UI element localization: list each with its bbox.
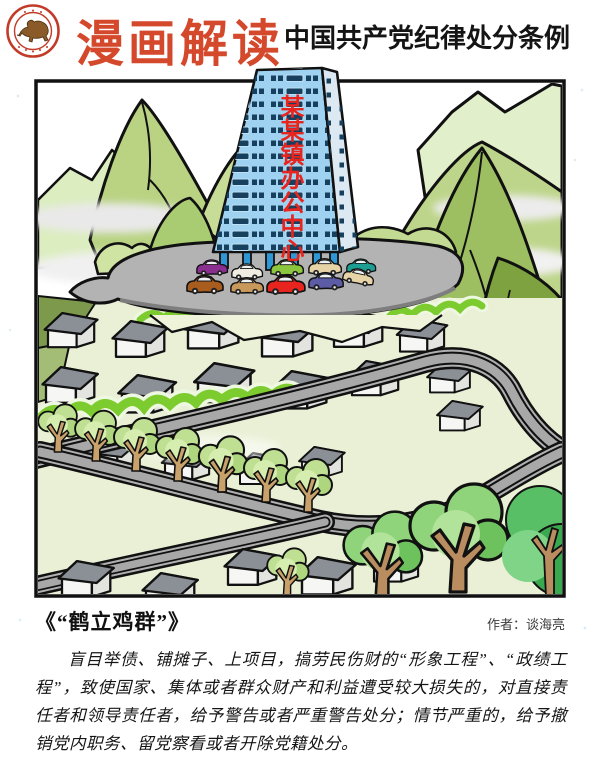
cartoon-title: 《“鹤立鸡群”》 — [35, 606, 190, 636]
page-title: 漫画解读 — [76, 3, 284, 76]
bull-seal-logo-icon — [5, 3, 61, 59]
page-subtitle: 中国共产党纪律处分条例 — [284, 18, 570, 55]
cartoon-author: 作者：谈海亮 — [487, 614, 565, 633]
comic-page: 某某镇办公中心 漫画解读 中国共产党纪律处分条例 《“鹤立鸡群”》 作者：谈海亮… — [0, 0, 600, 759]
regulation-paragraph: 盲目举债、铺摊子、上项目，搞劳民伤财的“形象工程”、“政绩工程”，致使国家、集体… — [35, 646, 567, 758]
building-sign-text: 某某镇办公中心 — [271, 92, 307, 264]
